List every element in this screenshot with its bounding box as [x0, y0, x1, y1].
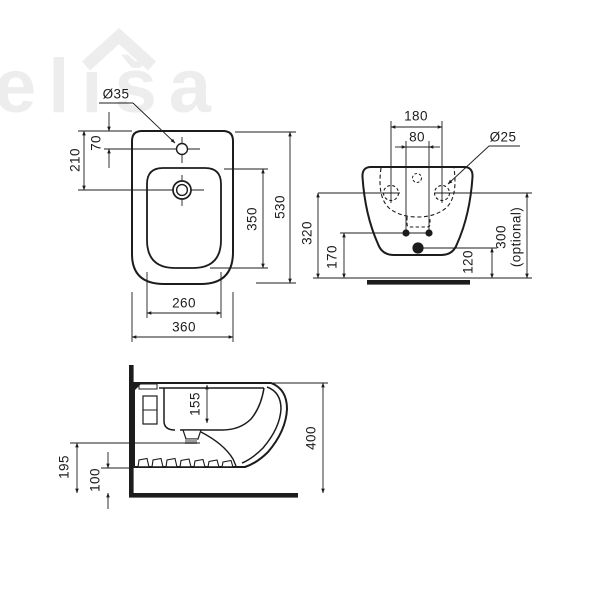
side-view: 155 400 195 100 [57, 365, 328, 509]
mount-dot-right [425, 229, 432, 236]
label-dim-350: 350 [245, 207, 260, 231]
front-view: 180 80 Ø25 320 170 120 300 (optional) [300, 109, 532, 285]
label-tap-hole-diameter: Ø35 [103, 87, 130, 102]
label-dim-195: 195 [57, 455, 72, 479]
label-dim-400: 400 [304, 426, 319, 450]
drain-hole-outer [173, 181, 191, 199]
label-dim-155: 155 [188, 392, 203, 416]
label-dim-80: 80 [409, 130, 425, 145]
label-dim-210: 210 [68, 148, 83, 172]
label-dim-170: 170 [325, 245, 340, 269]
front-floor-bar [367, 280, 470, 285]
label-dim-320: 320 [300, 221, 315, 245]
bidet-dimension-drawing: eliša [0, 0, 600, 600]
label-dim-100: 100 [88, 468, 103, 492]
label-dim-360: 360 [172, 320, 196, 335]
mount-dot-left [402, 229, 409, 236]
watermark: eliša [0, 36, 223, 129]
label-fixing-hole-diameter: Ø25 [490, 130, 517, 145]
label-dim-260: 260 [172, 296, 196, 311]
technical-drawing-page: eliša [0, 0, 600, 600]
label-dim-300-note: (optional) [509, 207, 524, 267]
label-dim-70: 70 [89, 135, 104, 151]
label-dim-530: 530 [273, 195, 288, 219]
drain-dot [412, 242, 423, 253]
label-dim-180: 180 [404, 109, 428, 124]
label-dim-120: 120 [461, 250, 476, 274]
floor-line [129, 493, 298, 498]
label-dim-300: 300 [494, 225, 509, 249]
tap-hole [177, 144, 188, 155]
wall-line [129, 365, 134, 497]
front-body-outline [362, 167, 472, 255]
outlet [183, 430, 201, 439]
